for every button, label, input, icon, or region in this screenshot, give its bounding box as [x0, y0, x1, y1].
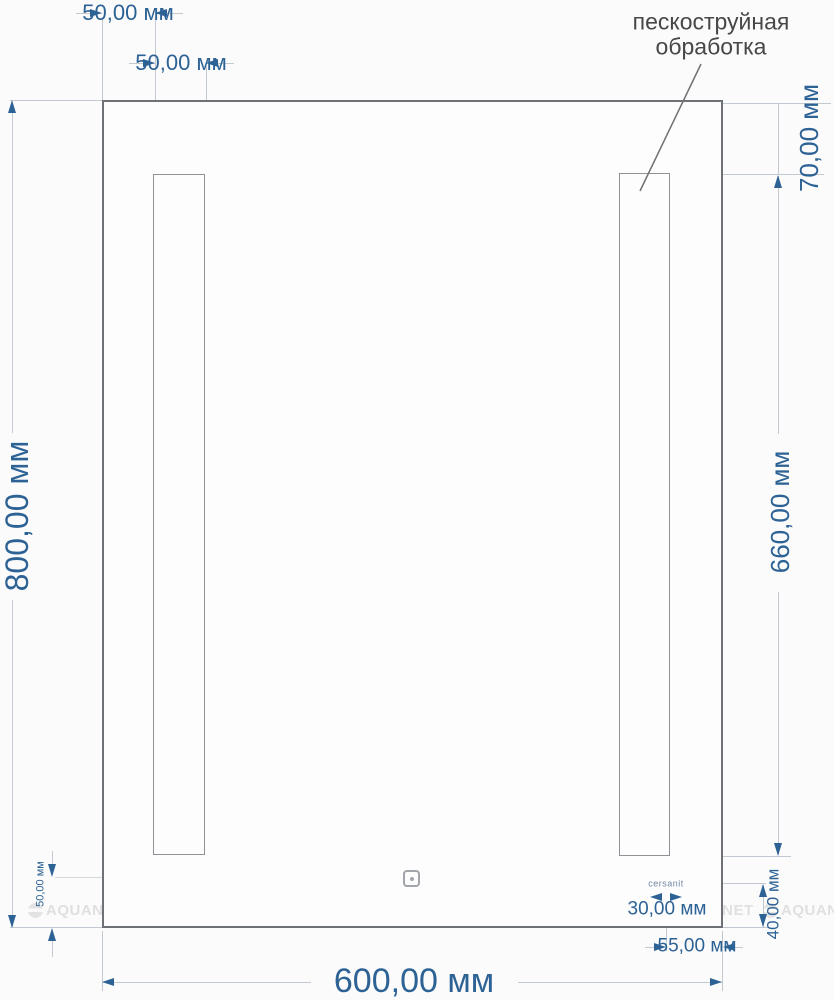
dim-label-strip-width: 50,00 мм — [135, 52, 226, 74]
dim-label-logo-bottom-offset: 40,00 мм — [765, 869, 782, 940]
dim-label-mirror-width: 600,00 мм — [334, 964, 494, 998]
dim-label-strip-height: 660,00 мм — [767, 451, 793, 574]
dim-label-mirror-height: 800,00 мм — [1, 441, 33, 592]
dim-label-strip-top-offset: 70,00 мм — [796, 84, 822, 192]
annotation-sandblasting-line1: пескоструйная — [633, 11, 790, 34]
technical-drawing-mirror: AQUANET AQUANET AQUANET AQUANET AQUANET … — [0, 0, 834, 1000]
dim-label-logo-width: 30,00 мм — [628, 900, 707, 919]
dim-label-strip-left-offset: 50,00 мм — [82, 2, 173, 24]
dim-label-sensor-bottom-offset: 50,00 мм — [36, 861, 47, 907]
leader-line — [0, 0, 834, 1000]
dim-label-logo-right-offset: 55,00 мм — [658, 937, 737, 956]
brand-logo-cersanit: cersanit — [648, 880, 684, 889]
annotation-sandblasting-line2: обработка — [656, 36, 767, 59]
